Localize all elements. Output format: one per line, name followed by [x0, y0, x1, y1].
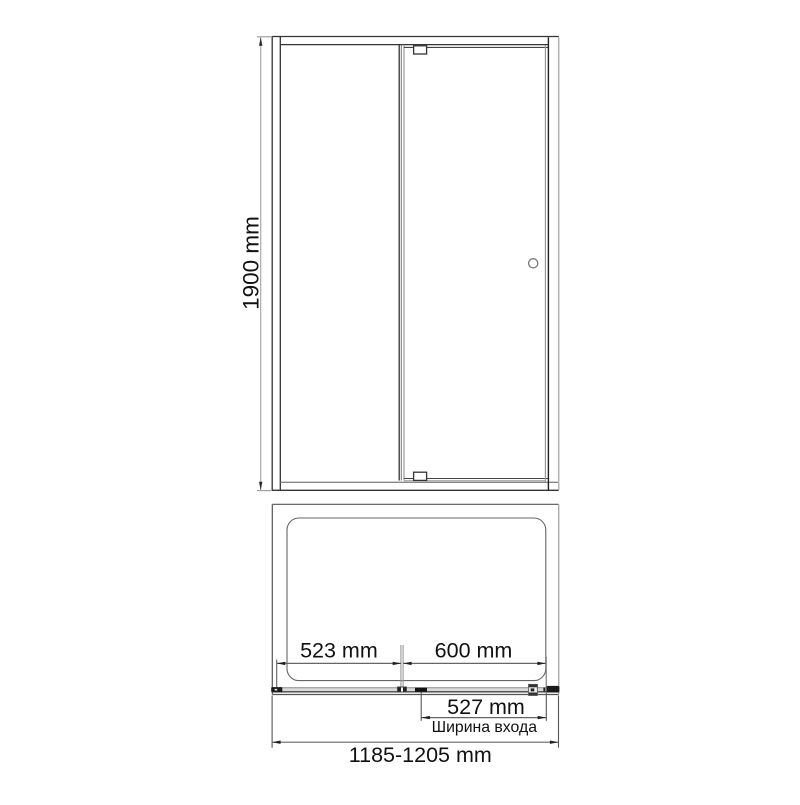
svg-text:Ширина входа: Ширина входа	[432, 719, 538, 736]
svg-text:523 mm: 523 mm	[300, 638, 378, 662]
svg-text:1185-1205 mm: 1185-1205 mm	[349, 743, 492, 767]
svg-text:1900 mm: 1900 mm	[238, 216, 263, 310]
svg-text:527 mm: 527 mm	[447, 695, 525, 719]
svg-text:600 mm: 600 mm	[435, 638, 513, 662]
